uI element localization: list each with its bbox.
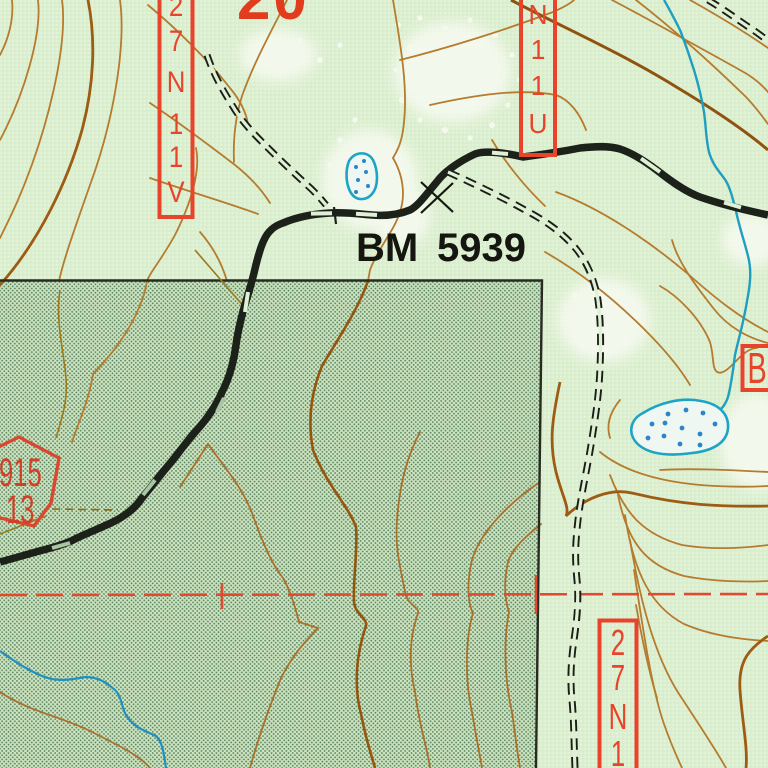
svg-text:7: 7	[611, 658, 625, 698]
svg-text:1: 1	[531, 33, 546, 65]
svg-text:N: N	[528, 0, 547, 30]
svg-text:BM5939: BM5939	[356, 226, 526, 270]
svg-text:1: 1	[611, 734, 625, 768]
svg-text:13: 13	[6, 488, 34, 532]
svg-text:2: 2	[169, 0, 183, 22]
svg-text:V: V	[167, 175, 185, 208]
svg-text:N: N	[167, 65, 186, 98]
svg-text:20: 20	[237, 0, 310, 32]
svg-text:7: 7	[169, 24, 183, 57]
svg-text:1: 1	[531, 69, 546, 101]
svg-text:N: N	[609, 697, 628, 737]
svg-text:B: B	[747, 343, 766, 393]
svg-text:1: 1	[169, 107, 183, 140]
svg-text:U: U	[528, 107, 547, 139]
svg-text:1: 1	[169, 140, 183, 173]
